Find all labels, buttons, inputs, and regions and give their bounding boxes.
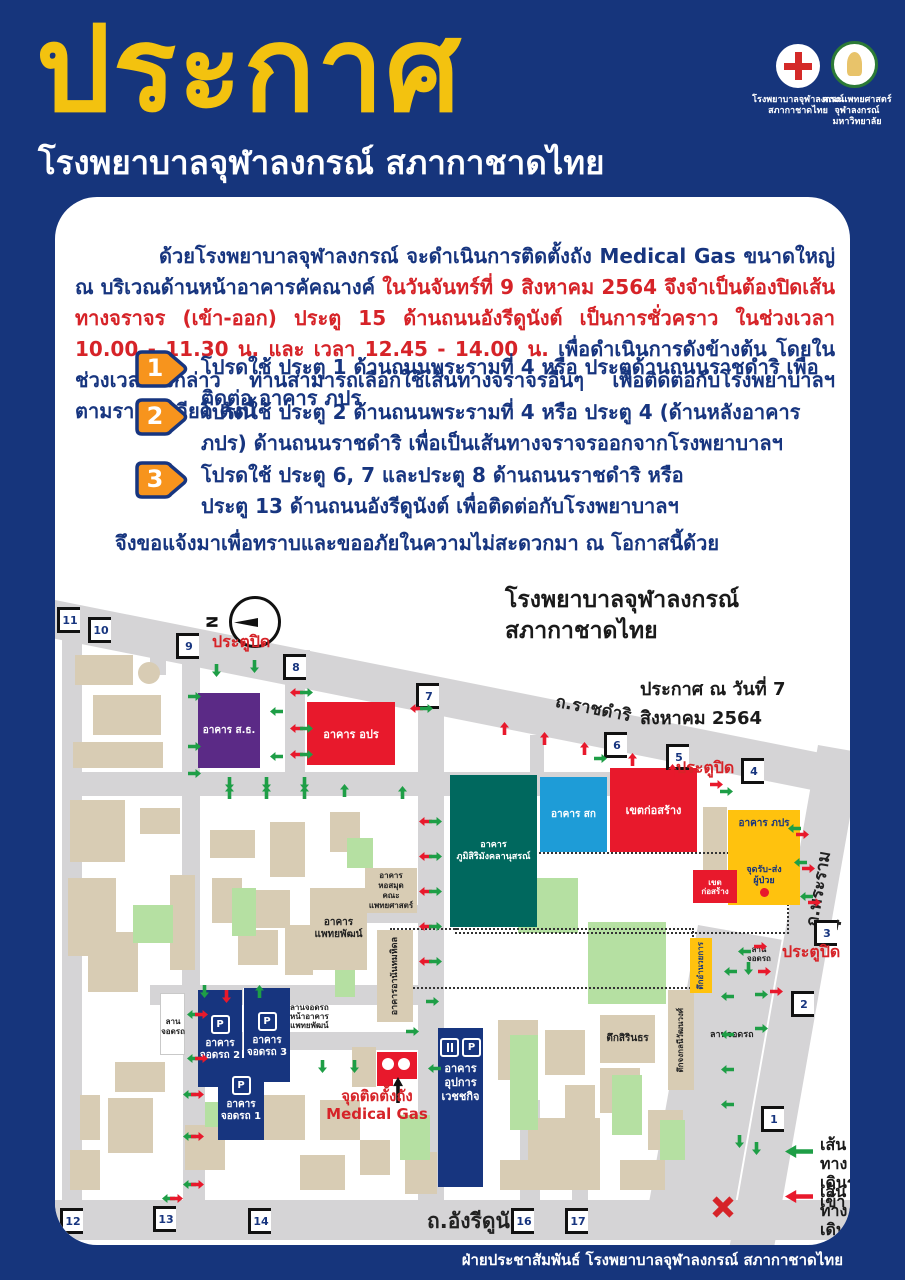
item-3-badge: 3 (133, 460, 189, 500)
medical-gas-building (377, 1052, 417, 1079)
parking-building-1: Pอาคาร จอดรถ 1 (218, 1058, 264, 1140)
gate-closed-label: ประตูปิด (212, 630, 270, 655)
red-cross-logo-icon (776, 44, 820, 88)
item-2-text: โปรดใช้ ประตู 2 ด้านถนนพระรามที่ 4 หรือ … (201, 397, 849, 459)
map-block (73, 742, 163, 768)
building-upakarn: P อาคาร อุปการ เวชชกิจ (438, 1028, 483, 1187)
page-subtitle: โรงพยาบาลจุฬาลงกรณ์ สภากาชาดไทย (38, 136, 604, 189)
gate-closed-label: ประตูปิด (676, 756, 734, 781)
map-block (232, 888, 256, 936)
map-block (70, 800, 125, 862)
upakarn-icons: P (440, 1038, 481, 1057)
page-title: ประกาศ (36, 4, 462, 134)
map-block (500, 1160, 540, 1190)
patient-pickup-dot (760, 888, 769, 897)
item-1-badge: 1 (133, 349, 189, 389)
medical-gas-label: จุดติดตั้งถัง Medical Gas (317, 1087, 437, 1123)
map-block (108, 1098, 153, 1153)
map-block (510, 1035, 538, 1130)
item-3-text: โปรดใช้ ประตู 6, 7 และประตู 8 ด้านถนนราช… (201, 460, 849, 522)
gate-8: 8 (283, 654, 306, 680)
building-phaetayaphat: อาคาร แพทยพัฒน์ (310, 888, 367, 970)
building-orpor: อาคาร อปร (307, 702, 395, 765)
gate-1: 1 (761, 1106, 784, 1132)
map-block (70, 1150, 100, 1190)
map-block (115, 1062, 165, 1092)
inbound-arrow-icon (720, 787, 733, 796)
parking-lot-phaetayaphat-label: ลานจอดรถ หน้าอาคาร แพทยพัฒน์ (290, 1003, 329, 1030)
gate-10: 10 (88, 617, 111, 643)
restaurant-icon (440, 1038, 459, 1057)
map-block (620, 1160, 665, 1190)
building-library: อาคาร หอสมุด คณะแพทยศาสตร์ (365, 868, 417, 913)
construction-boundary (390, 928, 694, 989)
map-block (88, 932, 138, 992)
map-block (170, 875, 195, 970)
map-block (138, 662, 160, 684)
building-sor-thor: อาคาร ส.ธ. (198, 693, 260, 768)
item-3-number: 3 (133, 465, 177, 493)
map-block (93, 695, 161, 735)
gate-7: 7 (416, 683, 439, 709)
parking-icon: P (462, 1038, 481, 1057)
inbound-arrow-icon (270, 707, 283, 716)
compass-north-label: N (202, 616, 220, 629)
building-amnuaykarn: ตึกอำนวยการ (690, 938, 712, 993)
map-block (545, 1030, 585, 1075)
map-block (347, 838, 373, 868)
item-2-badge: 2 (133, 397, 189, 437)
map-block (100, 662, 122, 684)
footer-credit: ฝ่ายประชาสัมพันธ์ โรงพยาบาลจุฬาลงกรณ์ สภ… (462, 1248, 843, 1272)
map-block (270, 822, 305, 877)
closed-gate-x-icon (710, 1194, 736, 1220)
gate-4: 4 (741, 758, 764, 784)
building-sirinthorn: ตึกสิรินธร (600, 1015, 655, 1063)
gate-16: 16 (511, 1208, 534, 1234)
gate-closed-label: ประตูปิด (782, 940, 840, 965)
gate-12: 12 (60, 1208, 83, 1234)
closing-line: จึงขอแจ้งมาเพื่อทราบและขออภัยในความไม่สะ… (115, 527, 719, 559)
poster: ประกาศ โรงพยาบาลจุฬาลงกรณ์ สภากาชาดไทย โ… (0, 0, 905, 1280)
item-2-number: 2 (133, 402, 177, 430)
inbound-arrow-icon (270, 752, 283, 761)
gate-11: 11 (57, 607, 80, 633)
gate-2: 2 (791, 991, 814, 1017)
building-sok: อาคาร สก (540, 777, 607, 852)
map-block (255, 890, 290, 928)
parking-lot-west-label: ลาน จอดรถ (161, 1017, 185, 1037)
map-block (80, 1095, 100, 1140)
outbound-arrow-icon (710, 780, 723, 789)
map-block (133, 905, 173, 943)
map-block (285, 925, 313, 975)
building-bhumisiri: อาคาร ภูมิสิริมังคลานุสรณ์ (450, 775, 537, 927)
gate-9: 9 (176, 633, 199, 659)
map-block (140, 808, 180, 834)
gate-17: 17 (565, 1208, 588, 1234)
faculty-logo-caption: คณะแพทยศาสตร์ จุฬาลงกรณ์มหาวิทยาลัย (812, 95, 902, 128)
gate-14: 14 (248, 1208, 271, 1234)
map-date: ประกาศ ณ วันที่ 7 สิงหาคม 2564 (640, 674, 850, 732)
map-block (360, 1140, 390, 1175)
gate-13: 13 (153, 1206, 176, 1232)
map-block (300, 1155, 345, 1190)
medical-gas-building (377, 1079, 393, 1086)
map-block (565, 1085, 595, 1120)
faculty-logo-icon (831, 41, 878, 88)
legend-outbound-label: เส้นทาง เดินรถออก (820, 1182, 850, 1245)
patient-pickup-label: จุดรับ-ส่ง ผู้ป่วย (731, 865, 797, 887)
building-ananthamahidol: อาคารอานันทมหิดล (377, 930, 413, 1022)
map-title: โรงพยาบาลจุฬาลงกรณ์ สภากาชาดไทย (505, 585, 739, 647)
inbound-arrow-icon (318, 1060, 327, 1073)
map-block (660, 1120, 685, 1160)
construction-zone-small: เขต ก่อสร้าง (693, 870, 737, 903)
road-internal (530, 735, 544, 780)
item-1-number: 1 (133, 354, 177, 382)
announcement-card: ด้วยโรงพยาบาลจุฬาลงกรณ์ จะดำเนินการติดตั… (55, 197, 850, 1245)
map-block (612, 1075, 642, 1135)
building-jongkolnee: ตึกจงกลนีวัฒนวงศ์ (668, 990, 694, 1090)
map-block (210, 830, 255, 858)
gate-6: 6 (604, 732, 627, 758)
